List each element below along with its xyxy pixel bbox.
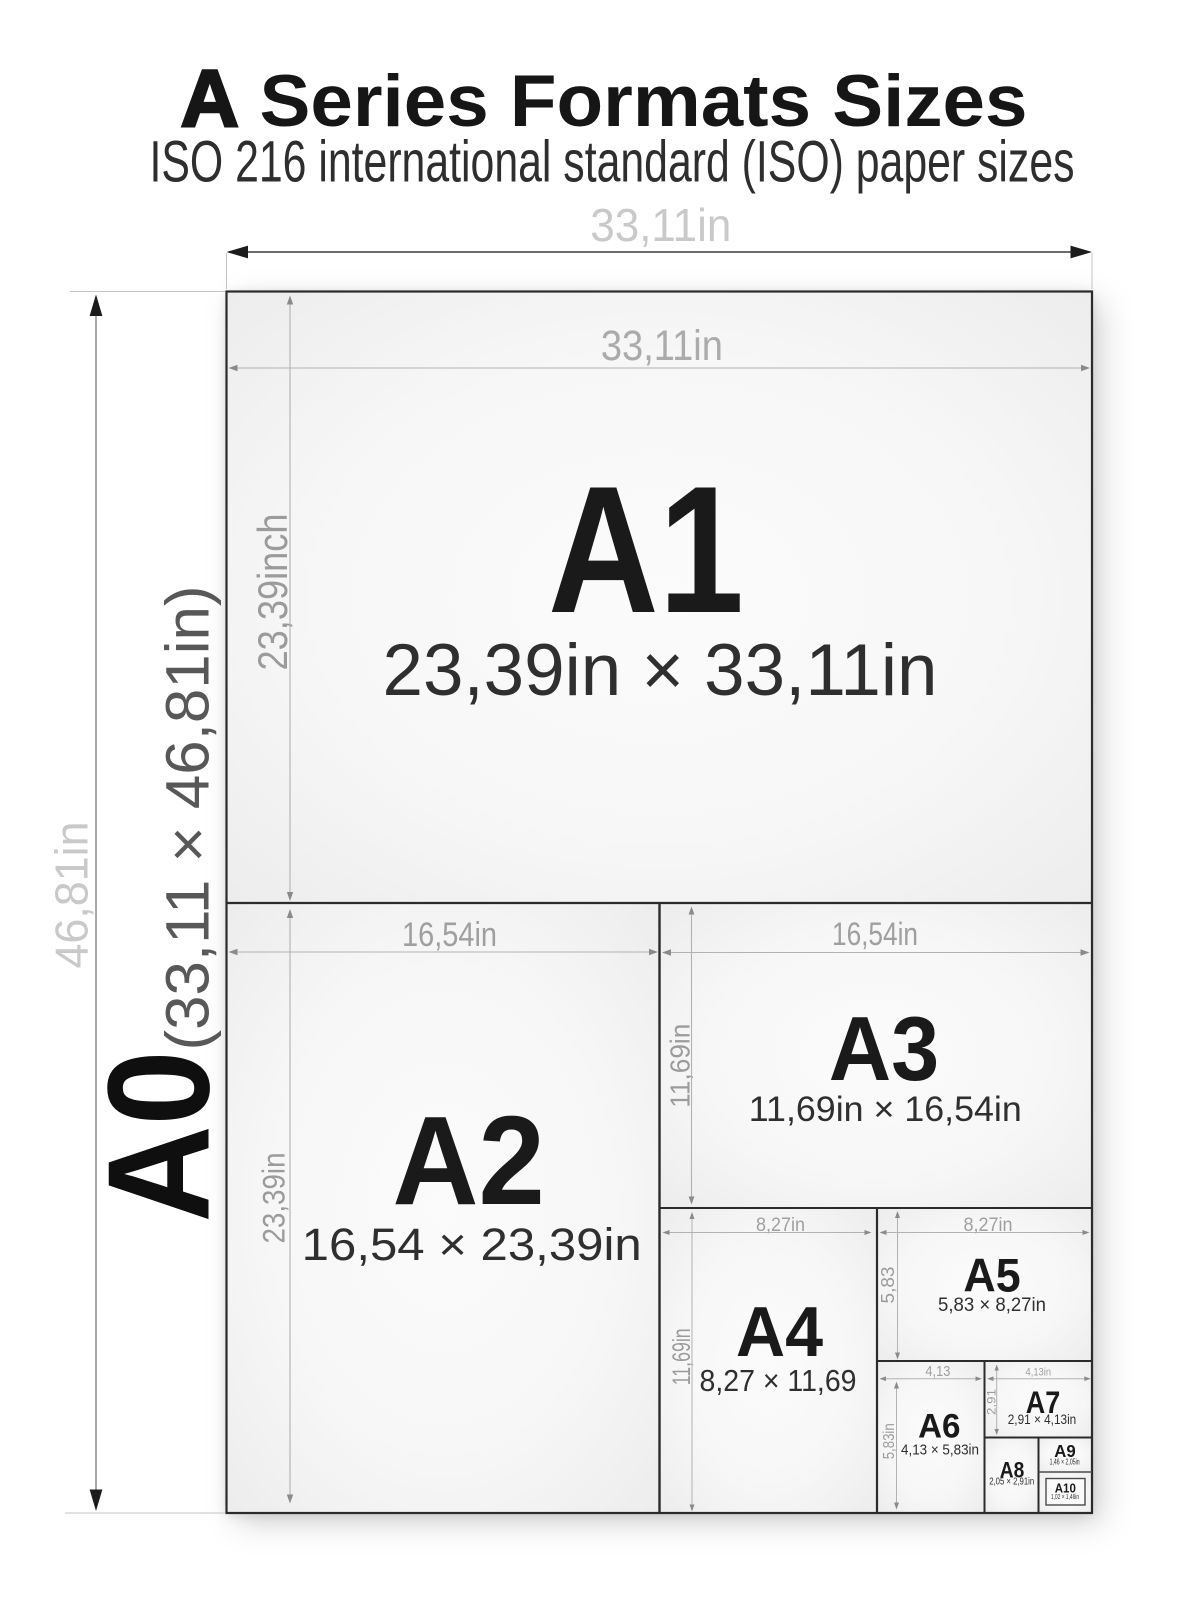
svg-text:5,83: 5,83 bbox=[877, 1267, 898, 1304]
svg-text:A3: A3 bbox=[829, 999, 940, 1100]
svg-text:23,39in: 23,39in bbox=[257, 1153, 292, 1244]
svg-text:23,39inch: 23,39inch bbox=[249, 514, 296, 671]
svg-text:1,02 × 1,46in: 1,02 × 1,46in bbox=[1051, 1492, 1079, 1501]
svg-text:33,11in: 33,11in bbox=[590, 199, 731, 251]
svg-text:A1: A1 bbox=[548, 449, 744, 651]
svg-text:4,13: 4,13 bbox=[925, 1364, 950, 1380]
svg-text:16,54in: 16,54in bbox=[832, 915, 918, 952]
svg-text:A6: A6 bbox=[918, 1408, 960, 1446]
svg-text:2,05 × 2,91in: 2,05 × 2,91in bbox=[989, 1477, 1034, 1488]
svg-text:11,69in × 16,54in: 11,69in × 16,54in bbox=[749, 1090, 1022, 1129]
svg-text:16,54in: 16,54in bbox=[402, 916, 497, 954]
svg-text:4,13 × 5,83in: 4,13 × 5,83in bbox=[901, 1443, 979, 1459]
svg-text:2,91 × 4,13in: 2,91 × 4,13in bbox=[1008, 1412, 1077, 1427]
svg-text:5,83 × 8,27in: 5,83 × 8,27in bbox=[938, 1295, 1046, 1316]
svg-text:5,83in: 5,83in bbox=[881, 1423, 898, 1459]
svg-text:ISO 216 international standard: ISO 216 international standard (ISO) pap… bbox=[150, 130, 1075, 195]
svg-text:A4: A4 bbox=[736, 1292, 823, 1371]
svg-text:4,13in: 4,13in bbox=[1026, 1367, 1052, 1379]
svg-text:16,54 × 23,39in: 16,54 × 23,39in bbox=[302, 1219, 642, 1270]
svg-text:1,46 × 2,05in: 1,46 × 2,05in bbox=[1050, 1457, 1080, 1467]
svg-text:A2: A2 bbox=[392, 1090, 545, 1231]
svg-text:8,27 × 11,69: 8,27 × 11,69 bbox=[700, 1364, 857, 1398]
svg-text:23,39in × 33,11in: 23,39in × 33,11in bbox=[383, 628, 938, 711]
svg-text:11,69in: 11,69in bbox=[665, 1024, 696, 1108]
svg-text:33,11in: 33,11in bbox=[601, 322, 723, 369]
svg-text:46,81in: 46,81in bbox=[46, 822, 98, 969]
svg-text:A5: A5 bbox=[963, 1249, 1020, 1302]
svg-text:A0(33,11 × 46,81in): A0(33,11 × 46,81in) bbox=[78, 586, 240, 1223]
